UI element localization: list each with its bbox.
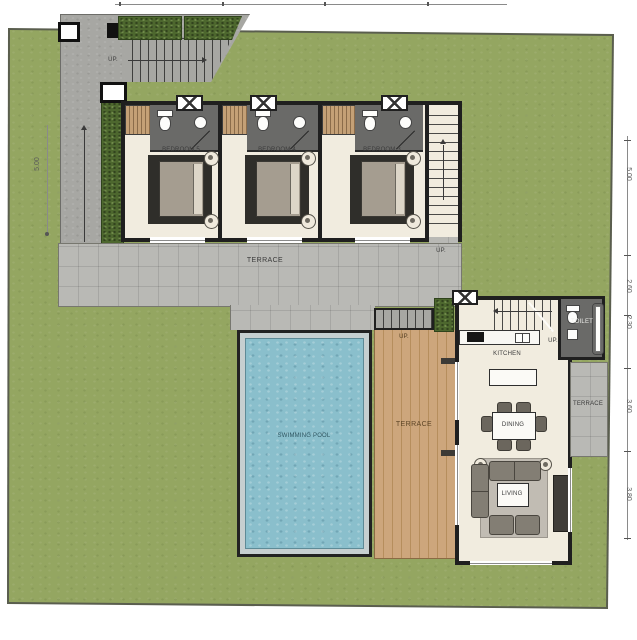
sliding-door [455, 445, 459, 525]
bed-pillows [395, 164, 404, 214]
living-label: LIVING [494, 490, 530, 498]
terrace-label: TERRACE [200, 257, 330, 265]
bedroom-3-label: BEDROOM 3 [347, 146, 417, 154]
dimension-tick [222, 2, 224, 6]
up-label-entry: UP. [101, 56, 125, 64]
bed [159, 161, 204, 217]
stair-terrace-gap [429, 237, 458, 243]
floor-plan-canvas: 5.00 5.00 2.60 2.30 3.60 3.80 UP. UP. TE… [0, 0, 637, 640]
toilet-room [558, 296, 605, 360]
gate-pillar [58, 22, 80, 42]
bed [361, 161, 406, 217]
roof-vent-icon [176, 95, 203, 111]
pool-label: SWIMMING POOL [254, 432, 354, 440]
dimension-line-left [47, 125, 48, 235]
dimension-tick [624, 368, 631, 369]
door-threshold [441, 358, 455, 364]
house-stair-arrow-icon [493, 308, 498, 314]
bedroom-4-door [247, 237, 302, 243]
toilet-icon [364, 116, 376, 131]
dining-label: DINING [492, 421, 534, 429]
dimension-line-right [627, 136, 628, 540]
nightstand-lamp [406, 214, 421, 229]
dimension-tick [624, 538, 631, 539]
entry-arrow-icon [202, 57, 207, 63]
sink-icon [567, 329, 578, 340]
dimension-line-top [115, 4, 507, 5]
wardrobe [322, 105, 357, 135]
dimension-tick [624, 140, 631, 141]
nightstand-lamp [301, 214, 316, 229]
entry-box [100, 82, 127, 103]
nightstand-lamp [406, 151, 421, 166]
window [470, 561, 552, 565]
up-label-deck: UP. [390, 333, 418, 341]
dimension-label-right: 5.00 [624, 162, 632, 186]
roof-vent-icon [250, 95, 277, 111]
dining-chair [535, 416, 547, 432]
ottoman [515, 515, 540, 535]
wardrobe [222, 105, 249, 135]
kitchen-label: KITCHEN [477, 350, 537, 358]
dimension-label-right: 3.60 [624, 394, 632, 418]
bedroom-4-label: BEDROOM 4 [242, 146, 312, 154]
sink-icon [399, 116, 412, 129]
bed-pillows [290, 164, 299, 214]
sofa [471, 464, 489, 518]
wardrobe [125, 105, 152, 135]
ottoman [489, 515, 514, 535]
main-terrace [58, 243, 462, 307]
dimension-label-right: 2.30 [624, 310, 632, 334]
walkway-arrow-icon [81, 125, 87, 130]
dimension-tick [624, 255, 631, 256]
dimension-tick [624, 451, 631, 452]
bedroom-3-door [355, 237, 410, 243]
dimension-label-left: 5.00 [34, 152, 42, 176]
side-terrace-label: TERRACE [568, 400, 608, 408]
hedge-row [184, 16, 242, 40]
bed-pillows [193, 164, 202, 214]
dimension-label-right: 3.80 [624, 482, 632, 506]
kitchen-island [489, 369, 537, 386]
hedge-row [118, 16, 182, 40]
sink-icon [293, 116, 306, 129]
nightstand-lamp [301, 151, 316, 166]
deck-terrace-label: TERRACE [374, 421, 454, 429]
sofa [489, 461, 541, 481]
bathroom-4 [247, 105, 318, 152]
sliding-door [455, 362, 459, 420]
roof-vent-icon [452, 290, 478, 305]
toilet-icon [257, 116, 269, 131]
bathtub-icon [592, 303, 604, 355]
bedroom-5-door [150, 237, 205, 243]
wood-deck [374, 330, 456, 559]
hedge-deck [434, 298, 454, 332]
window [568, 468, 572, 532]
dining-chair [497, 439, 512, 451]
up-label-terrace-stairs: UP. [427, 247, 455, 255]
swimming-pool [237, 330, 372, 557]
pool-water [245, 338, 364, 549]
roof-vent-icon [381, 95, 408, 111]
stove-icon [467, 332, 484, 342]
kitchen-sink-icon [522, 333, 530, 343]
entry-arrow-line [128, 60, 202, 61]
door-threshold [441, 450, 455, 456]
nightstand-lamp [204, 214, 219, 229]
bathroom-5 [150, 105, 218, 152]
nightstand-lamp [204, 151, 219, 166]
house-stair-arrow-line [498, 311, 552, 312]
dimension-tick [119, 2, 121, 6]
dimension-tick [324, 2, 326, 6]
pool-apron [230, 305, 375, 330]
dimension-tick [427, 2, 429, 6]
walkway-arrow-line [84, 130, 85, 242]
bed [256, 161, 301, 217]
side-terrace [570, 362, 608, 457]
deck-steps [374, 308, 434, 330]
toilet-icon [159, 116, 171, 131]
dimension-dot [45, 232, 49, 236]
sink-icon [194, 116, 207, 129]
stair-arrow-icon [440, 139, 446, 144]
kitchen-counter [459, 330, 540, 345]
toilet-label: TOILET [562, 318, 602, 326]
dimension-label-right: 2.60 [624, 274, 632, 298]
stair-arrow-line [443, 145, 444, 200]
gate-post [107, 23, 118, 38]
dining-chair [516, 439, 531, 451]
bathroom-3 [355, 105, 423, 152]
